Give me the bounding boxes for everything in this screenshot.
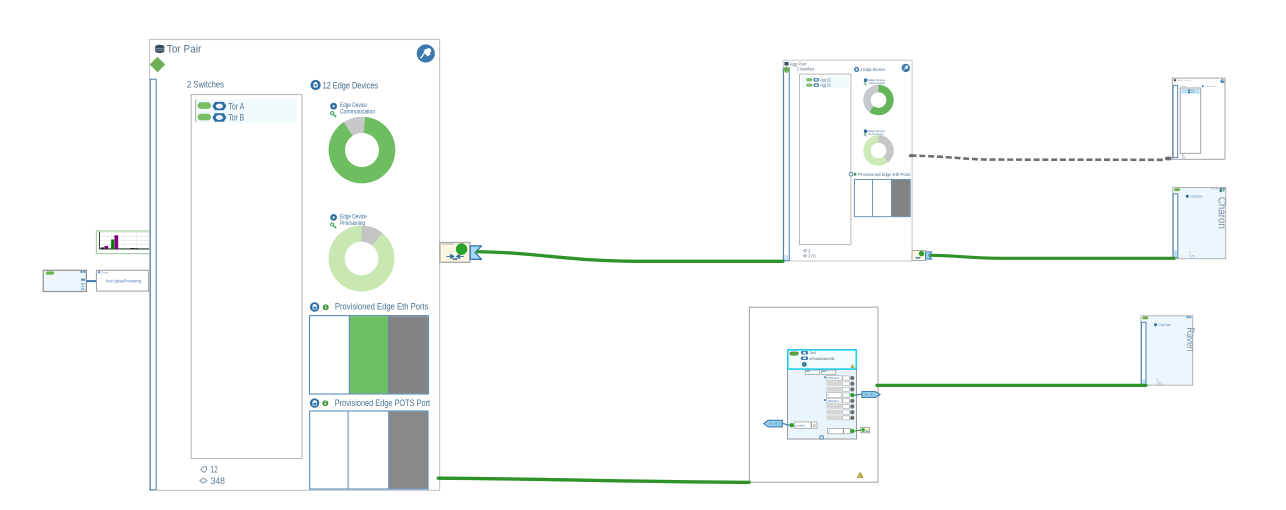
svg-text:2x4: 2x4 bbox=[810, 351, 816, 355]
svg-text:craft: craft bbox=[795, 423, 805, 427]
svg-text:Edge Device: Edge Device bbox=[340, 214, 367, 221]
svg-text:Charon: Charon bbox=[1215, 197, 1227, 229]
svg-text:2 Switches: 2 Switches bbox=[797, 66, 814, 71]
svg-text:Tor Pair: Tor Pair bbox=[167, 44, 202, 56]
svg-text:12 Edge Device: 12 Edge Device bbox=[1158, 323, 1171, 327]
svg-text:Agg 01: Agg 01 bbox=[820, 83, 831, 88]
svg-text:Provisioned Edge POTS Port: Provisioned Edge POTS Port bbox=[335, 398, 431, 409]
svg-text:12 Edge Devices: 12 Edge Devices bbox=[1205, 86, 1217, 88]
svg-text:176: 176 bbox=[808, 254, 816, 259]
svg-text:2 Switches: 2 Switches bbox=[187, 80, 224, 91]
svg-text:100 GE 2: 100 GE 2 bbox=[769, 422, 781, 426]
svg-text:Provisioned Edge Eth Ports: Provisioned Edge Eth Ports bbox=[858, 172, 911, 177]
svg-text:Tor B: Tor B bbox=[228, 113, 244, 124]
svg-text:172: 172 bbox=[1157, 381, 1163, 385]
svg-text:12: 12 bbox=[211, 463, 218, 474]
svg-text:aE7bcbA2bdce4 E6B: aE7bcbA2bdce4 E6B bbox=[810, 357, 835, 361]
svg-text:Provisioned Edge Eth Ports: Provisioned Edge Eth Ports bbox=[335, 302, 429, 313]
svg-text:Communication: Communication bbox=[340, 109, 375, 116]
svg-text:Raven: Raven bbox=[1184, 327, 1196, 351]
svg-text:Edge Device: Edge Device bbox=[340, 102, 367, 109]
svg-text:Agg 02: Agg 02 bbox=[820, 77, 831, 82]
svg-text:Tor B: Tor B bbox=[1191, 92, 1195, 94]
svg-text:12 Edge Device: 12 Edge Device bbox=[1190, 194, 1203, 198]
svg-text:100 GE 1: 100 GE 1 bbox=[863, 393, 875, 397]
svg-text:176: 176 bbox=[1189, 255, 1195, 259]
svg-text:Hour Update/Provisioning: Hour Update/Provisioning bbox=[106, 279, 141, 284]
svg-text:2 Edge Devices: 2 Edge Devices bbox=[860, 67, 885, 72]
svg-text:348: 348 bbox=[211, 475, 225, 486]
svg-text:Communication: Communication bbox=[869, 81, 886, 85]
svg-text:- pinned: - pinned bbox=[1183, 80, 1190, 82]
svg-text:348: 348 bbox=[1182, 157, 1187, 160]
svg-text:Tor A: Tor A bbox=[228, 101, 244, 112]
svg-text:2: 2 bbox=[808, 248, 811, 253]
svg-text:2 E7bcbA2b: 2 E7bcbA2b bbox=[441, 243, 455, 246]
svg-text:12 Edge Devices: 12 Edge Devices bbox=[323, 80, 379, 91]
